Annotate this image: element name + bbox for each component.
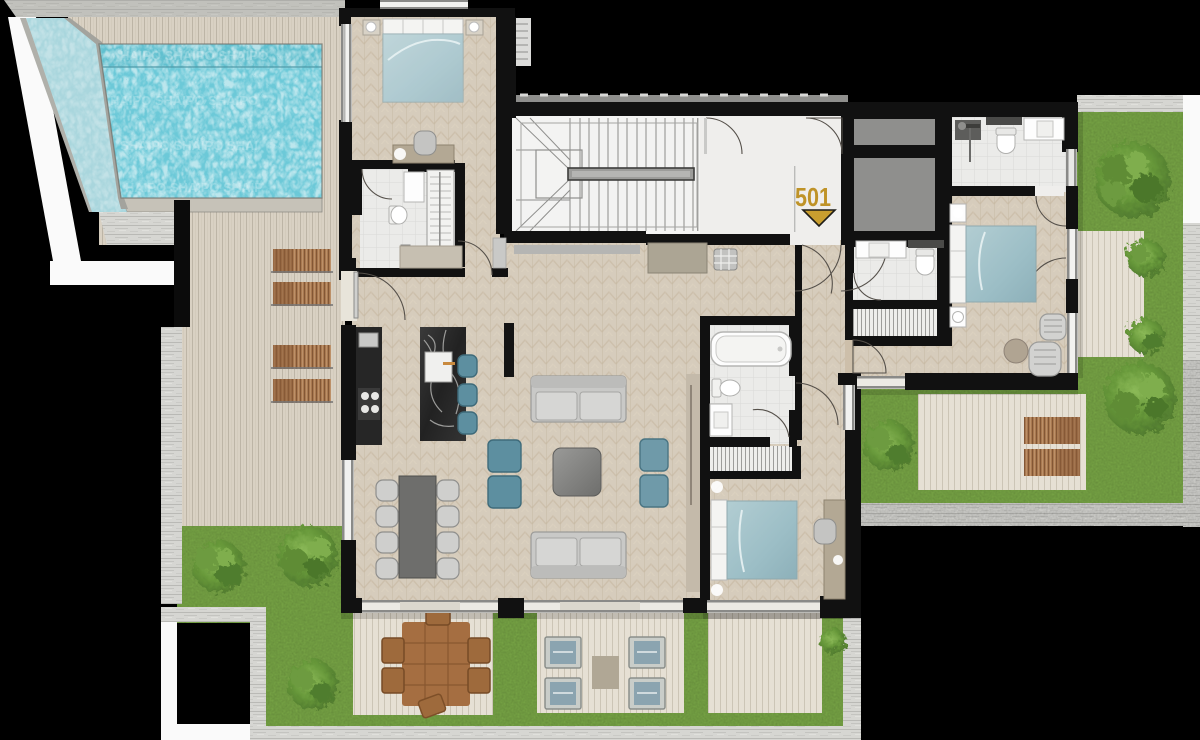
svg-text:SHAIPO SHAIPO SHAI: SHAIPO SHAIPO SHAI	[120, 138, 258, 153]
svg-text:HAIPO SHAIPO SHAIPO: HAIPO SHAIPO SHAIPO	[120, 48, 268, 63]
svg-text:HAIPO SHAIPO SHAIP: HAIPO SHAIPO SHAIP	[125, 180, 263, 195]
svg-text:HAIPO SHAIPO SHAIPO: HAIPO SHAIPO SHAIPO	[110, 93, 258, 108]
svg-text:501: 501	[795, 182, 831, 212]
